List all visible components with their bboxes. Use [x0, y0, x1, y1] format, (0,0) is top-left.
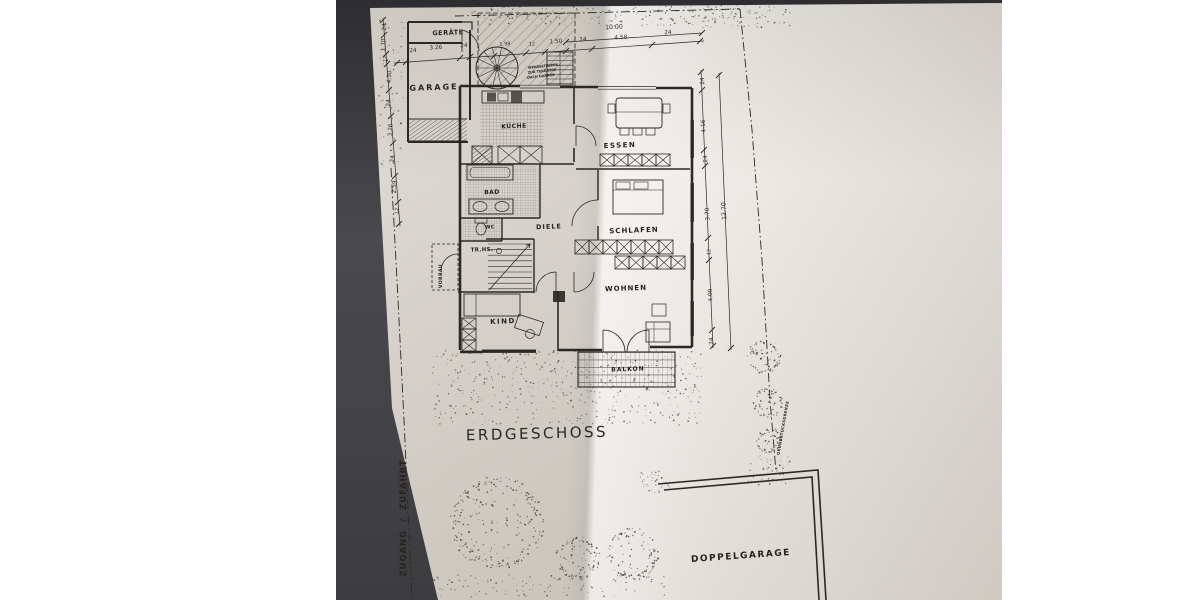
dim-label-198: 1.98: [499, 42, 510, 48]
dim-label-370: 3.70: [706, 207, 712, 220]
dim-label-12: 12: [529, 42, 536, 47]
drawing-title: ERDGESCHOSS: [466, 425, 609, 444]
dim-label-416: 4.16: [702, 119, 708, 132]
dim-label-24: 24: [664, 31, 672, 37]
room-label-balkon: BALKON: [611, 366, 645, 373]
room-label-garage: GARAGE: [409, 83, 458, 93]
floorplan-photo: GERÄTEGARAGEKÜCHEESSENBADWCDIELETR.HS.SC…: [0, 0, 1200, 600]
room-label-essen: ESSEN: [604, 142, 637, 150]
dim-label-400: 4.00: [709, 288, 715, 301]
dim-label-430: 4.30: [388, 70, 394, 83]
dim-label-24: 24: [701, 77, 707, 85]
dim-label-24: 24: [704, 155, 710, 163]
room-label-geraete: GERÄTE: [432, 29, 463, 37]
dim-label-24: 24: [387, 99, 393, 107]
dim-label-170: 1.70: [382, 38, 388, 51]
dim-label-1270: 12.70: [721, 202, 728, 220]
dim-label-326: 3.26: [389, 123, 395, 136]
floorplan-drawing: [0, 0, 1200, 600]
room-label-bad: BAD: [484, 190, 500, 197]
room-label-wc: WC: [485, 225, 495, 230]
room-label-kueche: KÜCHE: [501, 124, 527, 131]
dim-label-24: 24: [579, 38, 587, 44]
dim-label-24: 24: [383, 23, 389, 31]
room-label-vorbau: VORBAU: [440, 264, 445, 288]
dim-label-24: 24: [409, 49, 417, 55]
room-label-wohnen: WOHNEN: [605, 285, 647, 293]
dim-label-24: 24: [391, 155, 397, 163]
dim-label-12: 12: [707, 249, 712, 256]
dim-label-326: 3.26: [429, 46, 442, 52]
dim-label-150: 1.50: [549, 40, 562, 46]
room-label-diele: DIELE: [536, 223, 562, 230]
dim-label-259: 2.59: [393, 180, 399, 193]
dim-label-24: 24: [460, 44, 468, 50]
dim-label-12: 12: [395, 208, 400, 215]
room-label-kind: KIND: [490, 318, 516, 326]
room-label-zugang-zufahrt: ZUGANG / ZUFAHRT: [400, 459, 409, 576]
dim-label-458: 4.58: [614, 36, 627, 42]
room-label-treppenhaus: TR.HS.: [471, 248, 494, 254]
dim-label-1000: 10.00: [605, 24, 623, 31]
dim-label-12: 12: [383, 56, 388, 63]
dim-label-24: 24: [710, 337, 716, 345]
